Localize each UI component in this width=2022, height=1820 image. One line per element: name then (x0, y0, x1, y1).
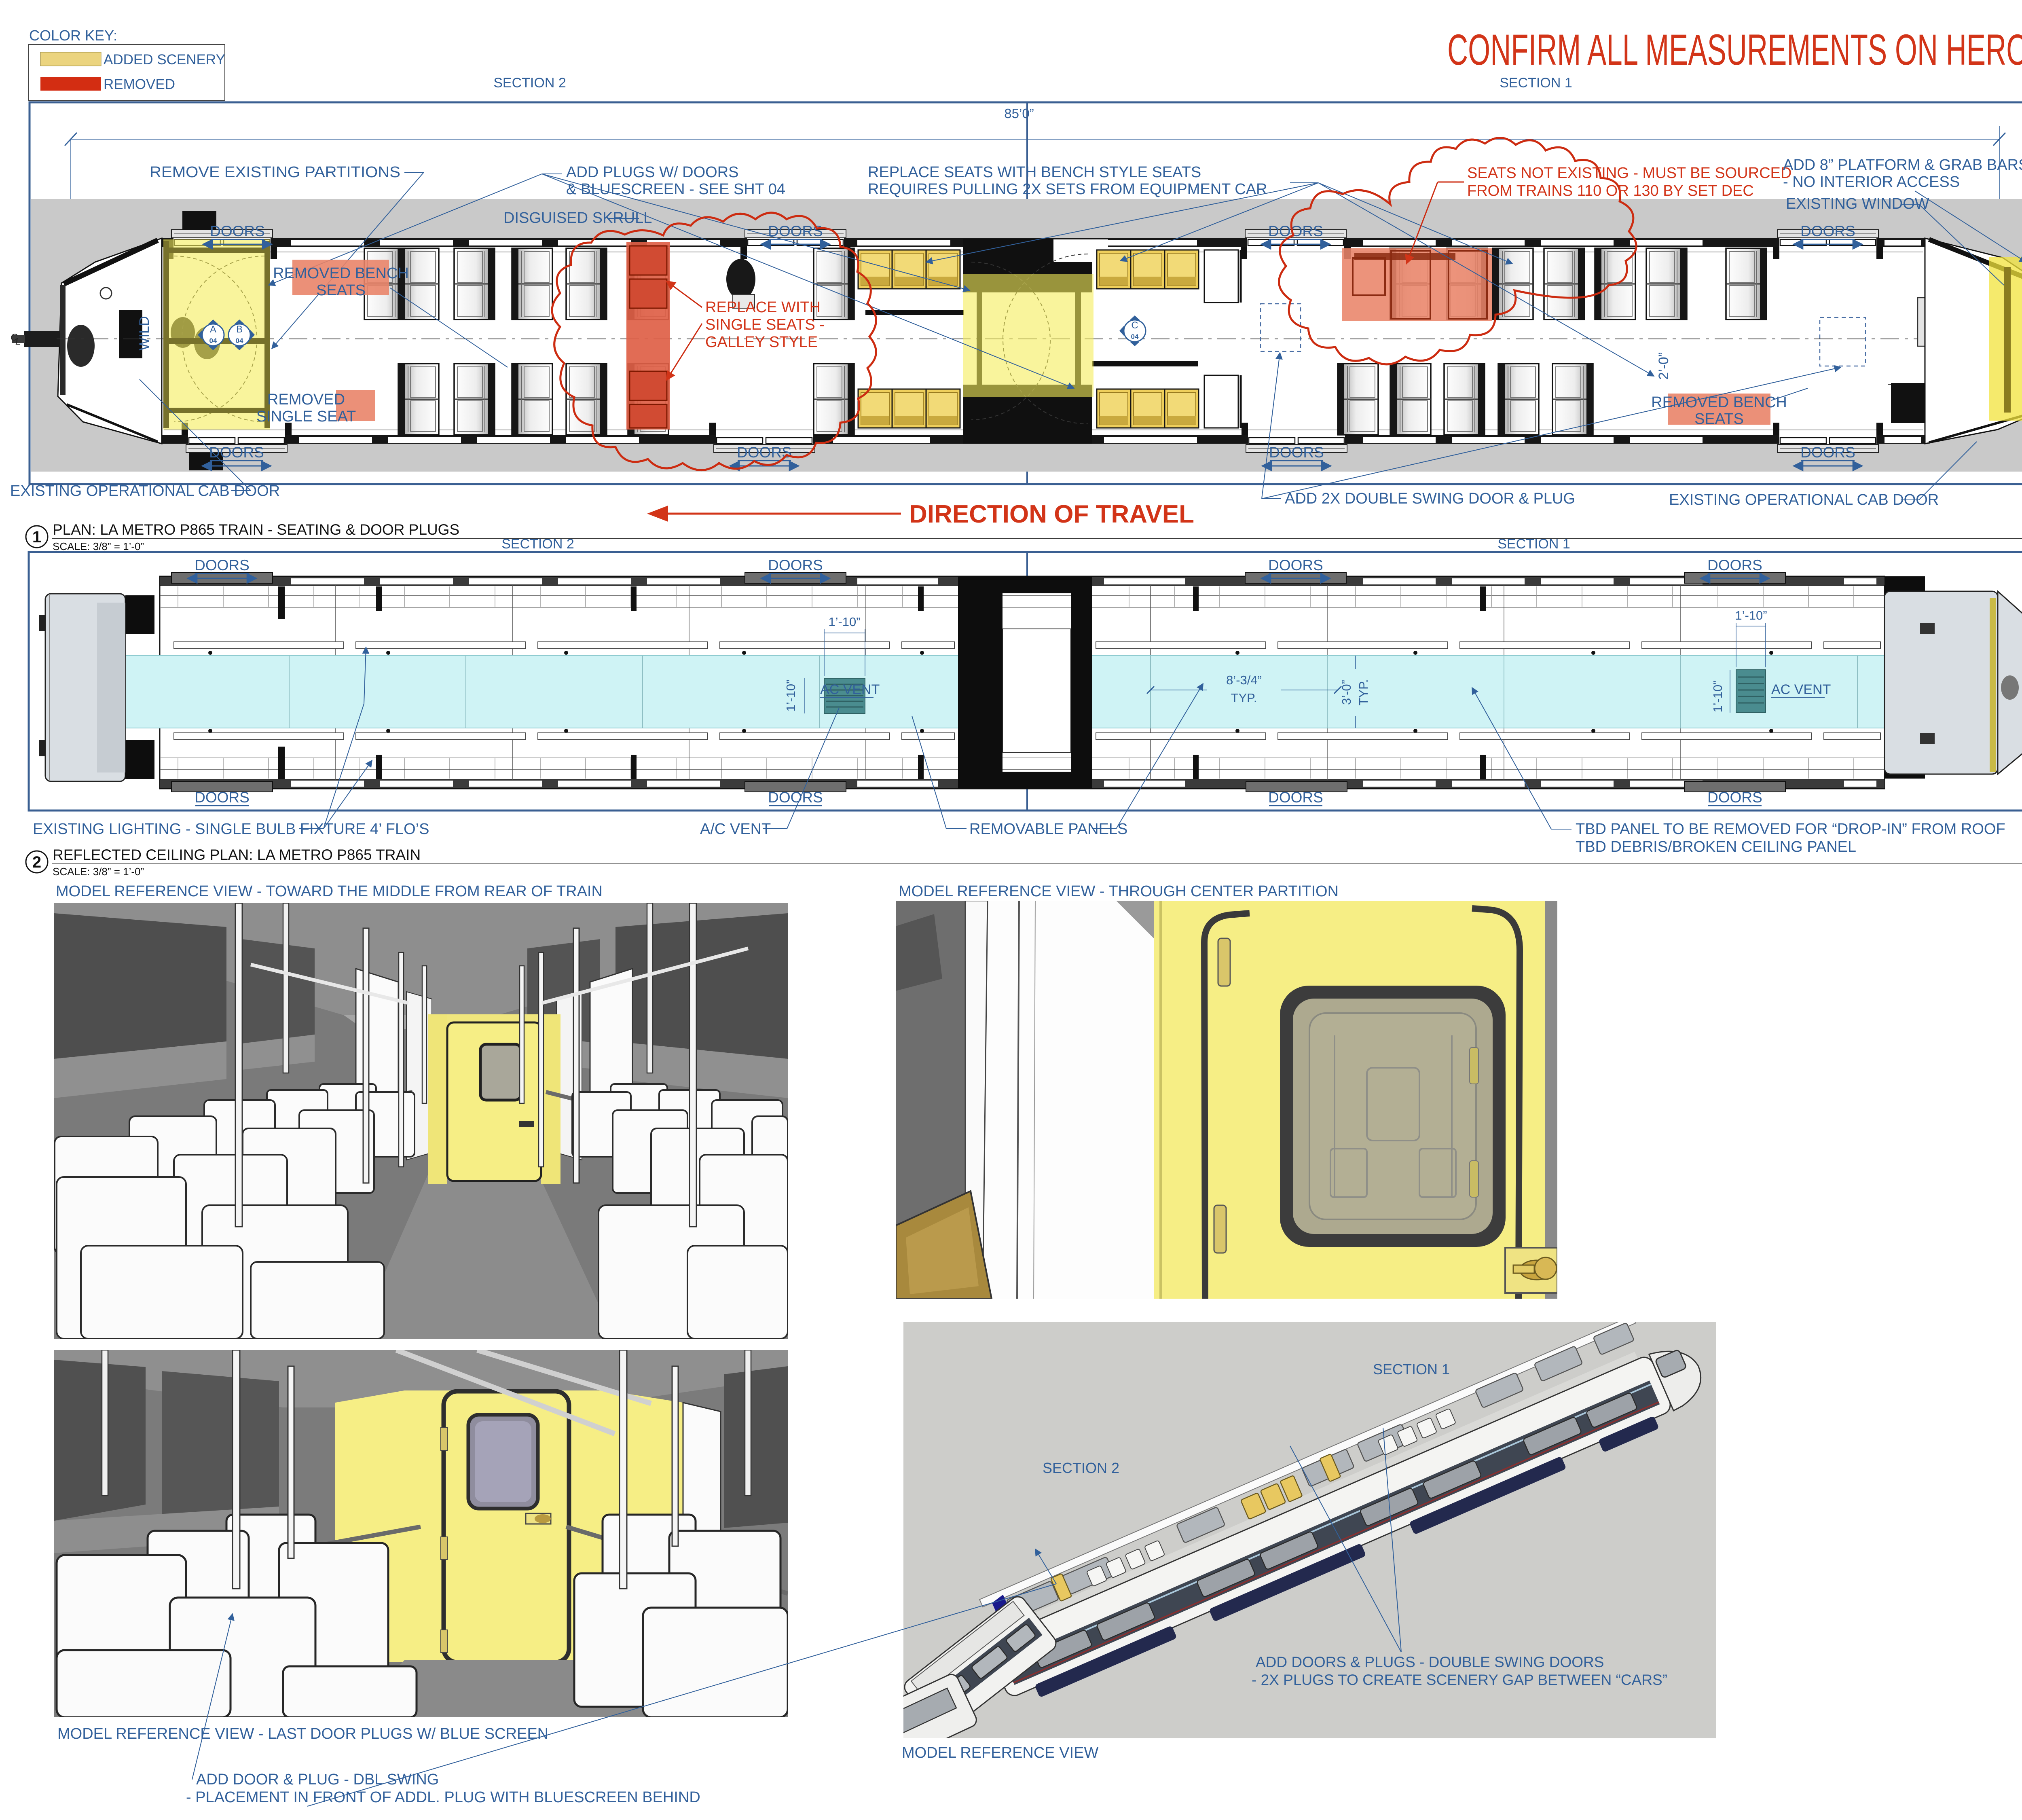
svg-text:DOORS: DOORS (1268, 557, 1323, 574)
svg-text:MODEL REFERENCE VIEW: MODEL REFERENCE VIEW (902, 1744, 1098, 1761)
svg-text:ADD DOORS & PLUGS - DOUBLE SWI: ADD DOORS & PLUGS - DOUBLE SWING DOORS (1256, 1654, 1604, 1670)
svg-text:DOORS: DOORS (768, 557, 823, 574)
svg-text:DOORS: DOORS (1707, 789, 1762, 806)
svg-text:REMOVED: REMOVED (104, 76, 175, 92)
svg-text:1’-10”: 1’-10” (828, 615, 860, 629)
svg-text:TBD PANEL TO BE REMOVED FOR “D: TBD PANEL TO BE REMOVED FOR “DROP-IN” FR… (1576, 821, 2005, 838)
svg-text:SEATS: SEATS (316, 282, 366, 299)
svg-text:85’0”: 85’0” (1004, 106, 1034, 121)
svg-text:TBD DEBRIS/BROKEN CEILING PANE: TBD DEBRIS/BROKEN CEILING PANEL (1576, 838, 1856, 855)
svg-text:1’-10”: 1’-10” (1711, 680, 1725, 712)
svg-text:ADD PLUGS W/ DOORS: ADD PLUGS W/ DOORS (566, 164, 739, 181)
svg-text:C: C (1131, 320, 1138, 331)
svg-text:DOORS: DOORS (195, 557, 250, 574)
svg-text:DOORS: DOORS (209, 444, 264, 461)
svg-text:1: 1 (32, 528, 41, 546)
svg-text:ADD 8” PLATFORM & GRAB BARS: ADD 8” PLATFORM & GRAB BARS (1783, 157, 2022, 174)
svg-text:EXISTING OPERATIONAL CAB DOOR: EXISTING OPERATIONAL CAB DOOR (1669, 491, 1939, 508)
svg-text:CONFIRM ALL MEASUREMENTS ON HE: CONFIRM ALL MEASUREMENTS ON HERO TRAIN B… (1447, 25, 2022, 74)
svg-text:- PLACEMENT IN FRONT OF ADDL.: - PLACEMENT IN FRONT OF ADDL. PLUG WITH … (186, 1789, 700, 1806)
svg-text:L: L (15, 336, 21, 347)
svg-text:- NO INTERIOR ACCESS: - NO INTERIOR ACCESS (1783, 174, 1960, 190)
svg-text:WILD: WILD (137, 316, 152, 351)
svg-text:SECTION 2: SECTION 2 (493, 75, 566, 91)
svg-text:SECTION 1: SECTION 1 (1373, 1361, 1450, 1378)
svg-text:SECTION 2: SECTION 2 (501, 536, 574, 552)
svg-text:MODEL REFERENCE VIEW - THROUGH: MODEL REFERENCE VIEW - THROUGH CENTER PA… (899, 883, 1339, 900)
svg-text:DOORS: DOORS (1268, 223, 1323, 239)
svg-text:DOORS: DOORS (1800, 223, 1855, 239)
svg-text:DOORS: DOORS (1268, 789, 1323, 806)
svg-text:REFLECTED CEILING PLAN: LA MET: REFLECTED CEILING PLAN: LA METRO P865 TR… (53, 847, 421, 863)
svg-text:3’-0”: 3’-0” (1339, 680, 1354, 705)
svg-text:REPLACE WITH: REPLACE WITH (705, 299, 821, 316)
svg-text:DOORS: DOORS (768, 789, 823, 806)
svg-text:FROM TRAINS 110 OR 130 BY SET: FROM TRAINS 110 OR 130 BY SET DEC (1467, 182, 1754, 199)
svg-text:SINGLE SEATS -: SINGLE SEATS - (705, 316, 825, 333)
svg-text:2: 2 (32, 853, 41, 871)
svg-text:AC VENT: AC VENT (820, 682, 880, 697)
svg-text:REMOVED BENCH: REMOVED BENCH (273, 265, 409, 282)
svg-text:GALLEY STYLE: GALLEY STYLE (705, 334, 818, 351)
svg-text:1’-10”: 1’-10” (784, 679, 798, 711)
svg-text:SECTION 1: SECTION 1 (1497, 536, 1570, 552)
svg-text:MODEL REFERENCE VIEW - TOWARD: MODEL REFERENCE VIEW - TOWARD THE MIDDLE… (56, 883, 603, 900)
svg-text:DOORS: DOORS (210, 223, 265, 239)
svg-text:DIRECTION OF TRAVEL: DIRECTION OF TRAVEL (909, 500, 1194, 528)
svg-text:DOORS: DOORS (195, 789, 250, 806)
svg-text:SEATS NOT EXISTING - MUST BE S: SEATS NOT EXISTING - MUST BE SOURCED (1467, 165, 1791, 182)
svg-text:TYP.: TYP. (1356, 679, 1371, 706)
svg-text:REMOVED: REMOVED (267, 391, 345, 408)
svg-text:DOORS: DOORS (1707, 557, 1762, 574)
svg-text:SCALE: 3/8” = 1’-0”: SCALE: 3/8” = 1’-0” (53, 866, 144, 878)
svg-text:8’-3/4”: 8’-3/4” (1226, 673, 1262, 687)
svg-text:ADDED SCENERY: ADDED SCENERY (104, 52, 225, 68)
svg-text:AC VENT: AC VENT (1771, 682, 1831, 697)
svg-text:1’-10”: 1’-10” (1735, 608, 1767, 622)
svg-text:EXISTING LIGHTING - SINGLE BUL: EXISTING LIGHTING - SINGLE BULB FIXTURE … (33, 821, 429, 838)
svg-text:SEATS: SEATS (1694, 411, 1744, 427)
svg-text:SECTION 1: SECTION 1 (1500, 75, 1572, 91)
svg-text:SINGLE SEAT: SINGLE SEAT (256, 408, 356, 425)
svg-text:DOORS: DOORS (1800, 444, 1855, 461)
svg-text:SCALE: 3/8” = 1’-0”: SCALE: 3/8” = 1’-0” (53, 540, 144, 552)
svg-text:DOORS: DOORS (1269, 444, 1324, 461)
svg-text:A: A (210, 324, 216, 335)
svg-text:REPLACE SEATS WITH BENCH STYLE: REPLACE SEATS WITH BENCH STYLE SEATS (868, 164, 1201, 181)
svg-text:MODEL REFERENCE VIEW - LAST DO: MODEL REFERENCE VIEW - LAST DOOR PLUGS W… (57, 1725, 548, 1742)
svg-text:- 2X PLUGS TO CREATE SCENERY G: - 2X PLUGS TO CREATE SCENERY GAP BETWEEN… (1252, 1672, 1667, 1688)
svg-text:ADD 2X DOUBLE SWING DOOR & PLU: ADD 2X DOUBLE SWING DOOR & PLUG (1285, 490, 1575, 507)
svg-text:REMOVED BENCH: REMOVED BENCH (1651, 394, 1787, 411)
svg-text:B: B (236, 324, 243, 335)
svg-text:ADD DOOR & PLUG - DBL SWING: ADD DOOR & PLUG - DBL SWING (196, 1771, 439, 1788)
svg-text:04: 04 (1131, 333, 1139, 341)
svg-text:COLOR KEY:: COLOR KEY: (29, 27, 117, 44)
svg-text:REQUIRES PULLING 2X SETS FROM: REQUIRES PULLING 2X SETS FROM EQUIPMENT … (868, 181, 1267, 198)
svg-text:2’-0”: 2’-0” (1656, 352, 1671, 380)
svg-text:04: 04 (209, 337, 217, 345)
svg-text:PLAN: LA METRO P865 TRAIN - SE: PLAN: LA METRO P865 TRAIN - SEATING & DO… (53, 521, 459, 538)
svg-text:REMOVE EXISTING PARTITIONS: REMOVE EXISTING PARTITIONS (150, 164, 400, 181)
svg-text:TYP.: TYP. (1231, 691, 1257, 705)
svg-text:A/C VENT: A/C VENT (700, 821, 771, 838)
svg-text:04: 04 (236, 337, 243, 345)
svg-text:SECTION 2: SECTION 2 (1043, 1460, 1119, 1476)
